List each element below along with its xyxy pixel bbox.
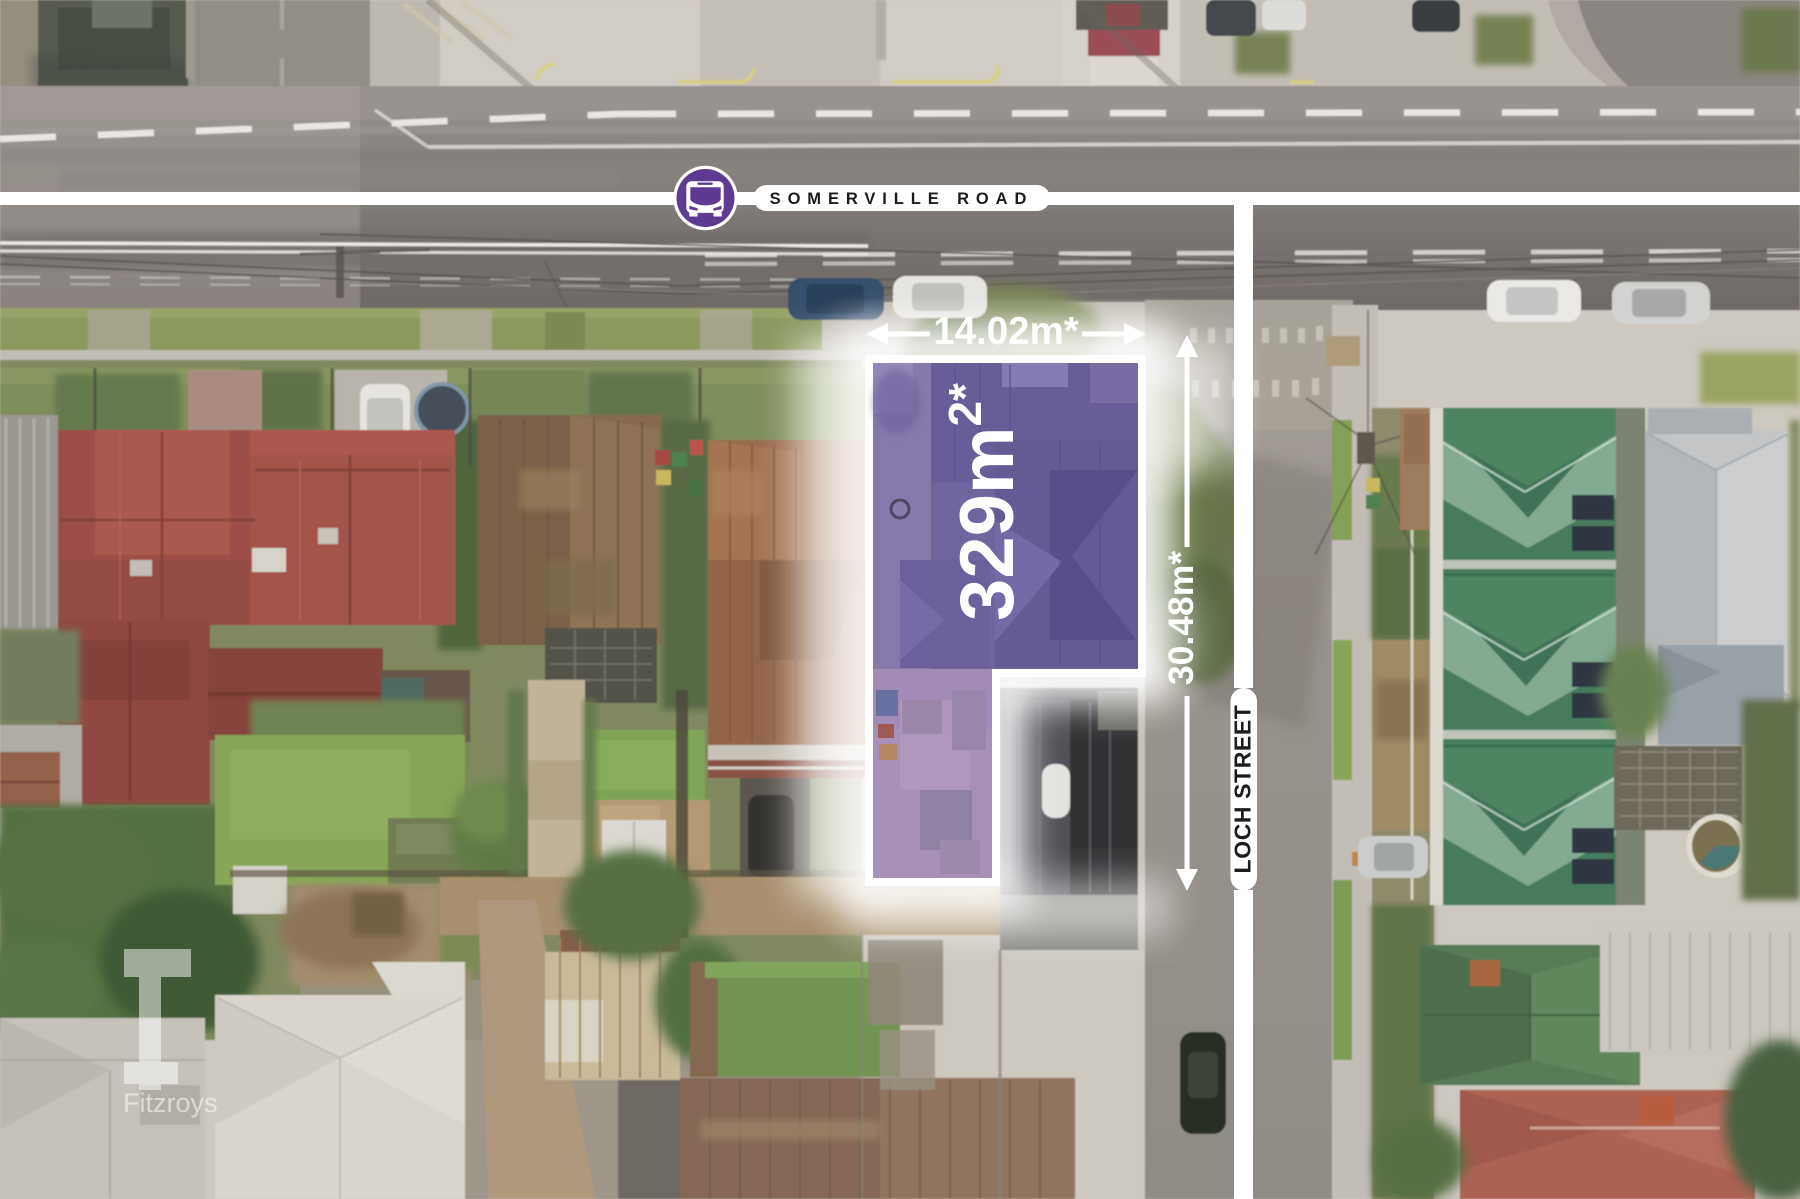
svg-text:Fitzroys: Fitzroys (123, 1088, 218, 1118)
svg-text:SOMERVILLE ROAD: SOMERVILLE ROAD (770, 190, 1034, 208)
svg-text:LOCH STREET: LOCH STREET (1230, 705, 1256, 874)
svg-text:30.48m*: 30.48m* (1161, 551, 1201, 685)
svg-text:14.02m*: 14.02m* (933, 310, 1079, 353)
